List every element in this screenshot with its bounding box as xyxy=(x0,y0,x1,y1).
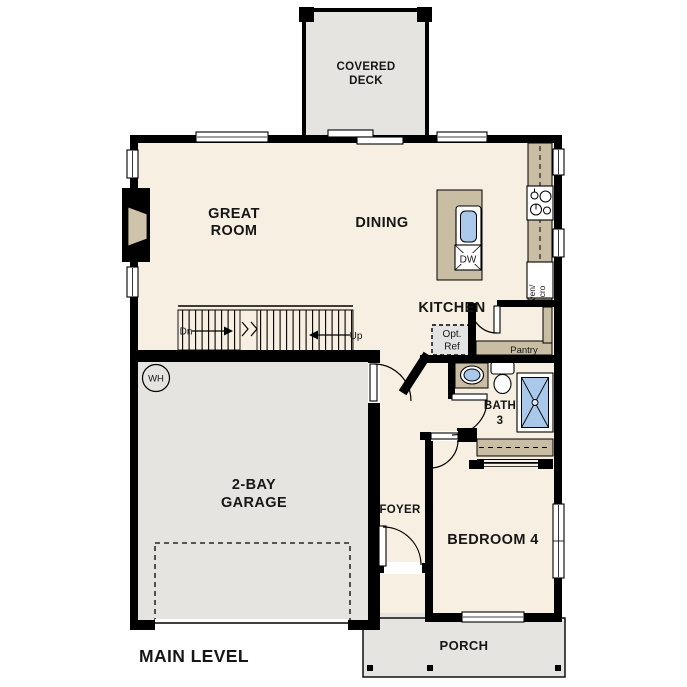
dishwasher: DW xyxy=(455,245,481,270)
opt-ref: Opt. Ref xyxy=(432,325,472,355)
cooktop xyxy=(527,186,553,220)
deck-rail-left xyxy=(302,9,306,137)
bedroom4-label: BEDROOM 4 xyxy=(447,532,538,548)
garage-door-opening xyxy=(155,619,348,631)
kitchen-label: KITCHEN xyxy=(418,300,485,316)
deck-slider-panel xyxy=(328,130,373,137)
opt-ref-label-2: Ref xyxy=(444,342,460,353)
stair-flight-up xyxy=(257,310,353,352)
deck-rail-right xyxy=(425,9,429,137)
garage-label-2: GARAGE xyxy=(221,495,287,511)
wall-garage-top xyxy=(130,350,380,362)
kitchen-island: DW xyxy=(437,190,482,280)
stairs-down-label: Dn xyxy=(180,327,193,338)
bath-door-leaf xyxy=(452,394,487,400)
wall-kitchen-bath xyxy=(420,355,562,363)
shower-drain xyxy=(532,400,538,406)
covered-deck-label-1: COVERED xyxy=(337,61,396,73)
deck-post-right xyxy=(417,7,432,22)
porch-post xyxy=(367,665,373,671)
bath3-label-2: 3 xyxy=(497,415,504,427)
wall-foyer-bedroom xyxy=(425,437,433,615)
great-room-label-1: GREAT xyxy=(208,206,260,222)
floorplan-svg: Oven/ Micro DW Opt. Ref xyxy=(0,0,687,687)
closet-jamb-right xyxy=(538,460,553,469)
floorplan-canvas: Oven/ Micro DW Opt. Ref xyxy=(0,0,687,687)
foyer-label: FOYER xyxy=(379,504,421,516)
wall-bath-closet-corner xyxy=(457,428,477,442)
plan-title: MAIN LEVEL xyxy=(139,646,249,666)
pantry-label: Pantry xyxy=(510,345,538,356)
deck-slider-panel xyxy=(357,137,403,144)
wall-garage-bottom-left xyxy=(130,620,157,630)
bath-sink-basin xyxy=(464,369,480,381)
water-heater: WH xyxy=(143,365,170,392)
porch-post xyxy=(555,665,561,671)
front-door-opening xyxy=(384,562,422,574)
dining-label: DINING xyxy=(355,215,408,231)
dishwasher-label: DW xyxy=(460,255,477,266)
porch-post xyxy=(427,665,433,671)
deck-slab xyxy=(306,12,425,136)
covered-deck-label-2: DECK xyxy=(349,75,383,87)
bath3-label-1: BATH xyxy=(484,400,516,412)
water-heater-label: WH xyxy=(148,374,164,385)
opt-ref-label-1: Opt. xyxy=(443,329,462,340)
wall-pantry-top xyxy=(497,300,562,307)
fireplace xyxy=(122,188,150,262)
deck-rail-top xyxy=(304,8,427,12)
great-room-label-2: ROOM xyxy=(211,223,258,239)
shower xyxy=(517,373,553,432)
garage-service-door-leaf xyxy=(370,364,377,401)
stairs-up-label: Up xyxy=(350,331,363,342)
island-sink-basin xyxy=(461,211,477,242)
closet-jamb-left xyxy=(469,460,484,469)
stairs xyxy=(178,306,353,352)
porch-label: PORCH xyxy=(440,638,489,653)
bedroom-door-leaf xyxy=(431,433,458,439)
wall-hall-bath xyxy=(448,355,455,399)
pantry-shelf-right xyxy=(543,307,552,343)
front-door-leaf xyxy=(379,526,386,566)
pantry-door-leaf xyxy=(494,306,500,333)
deck-post-left xyxy=(299,7,314,22)
garage-label-1: 2-BAY xyxy=(232,477,276,493)
